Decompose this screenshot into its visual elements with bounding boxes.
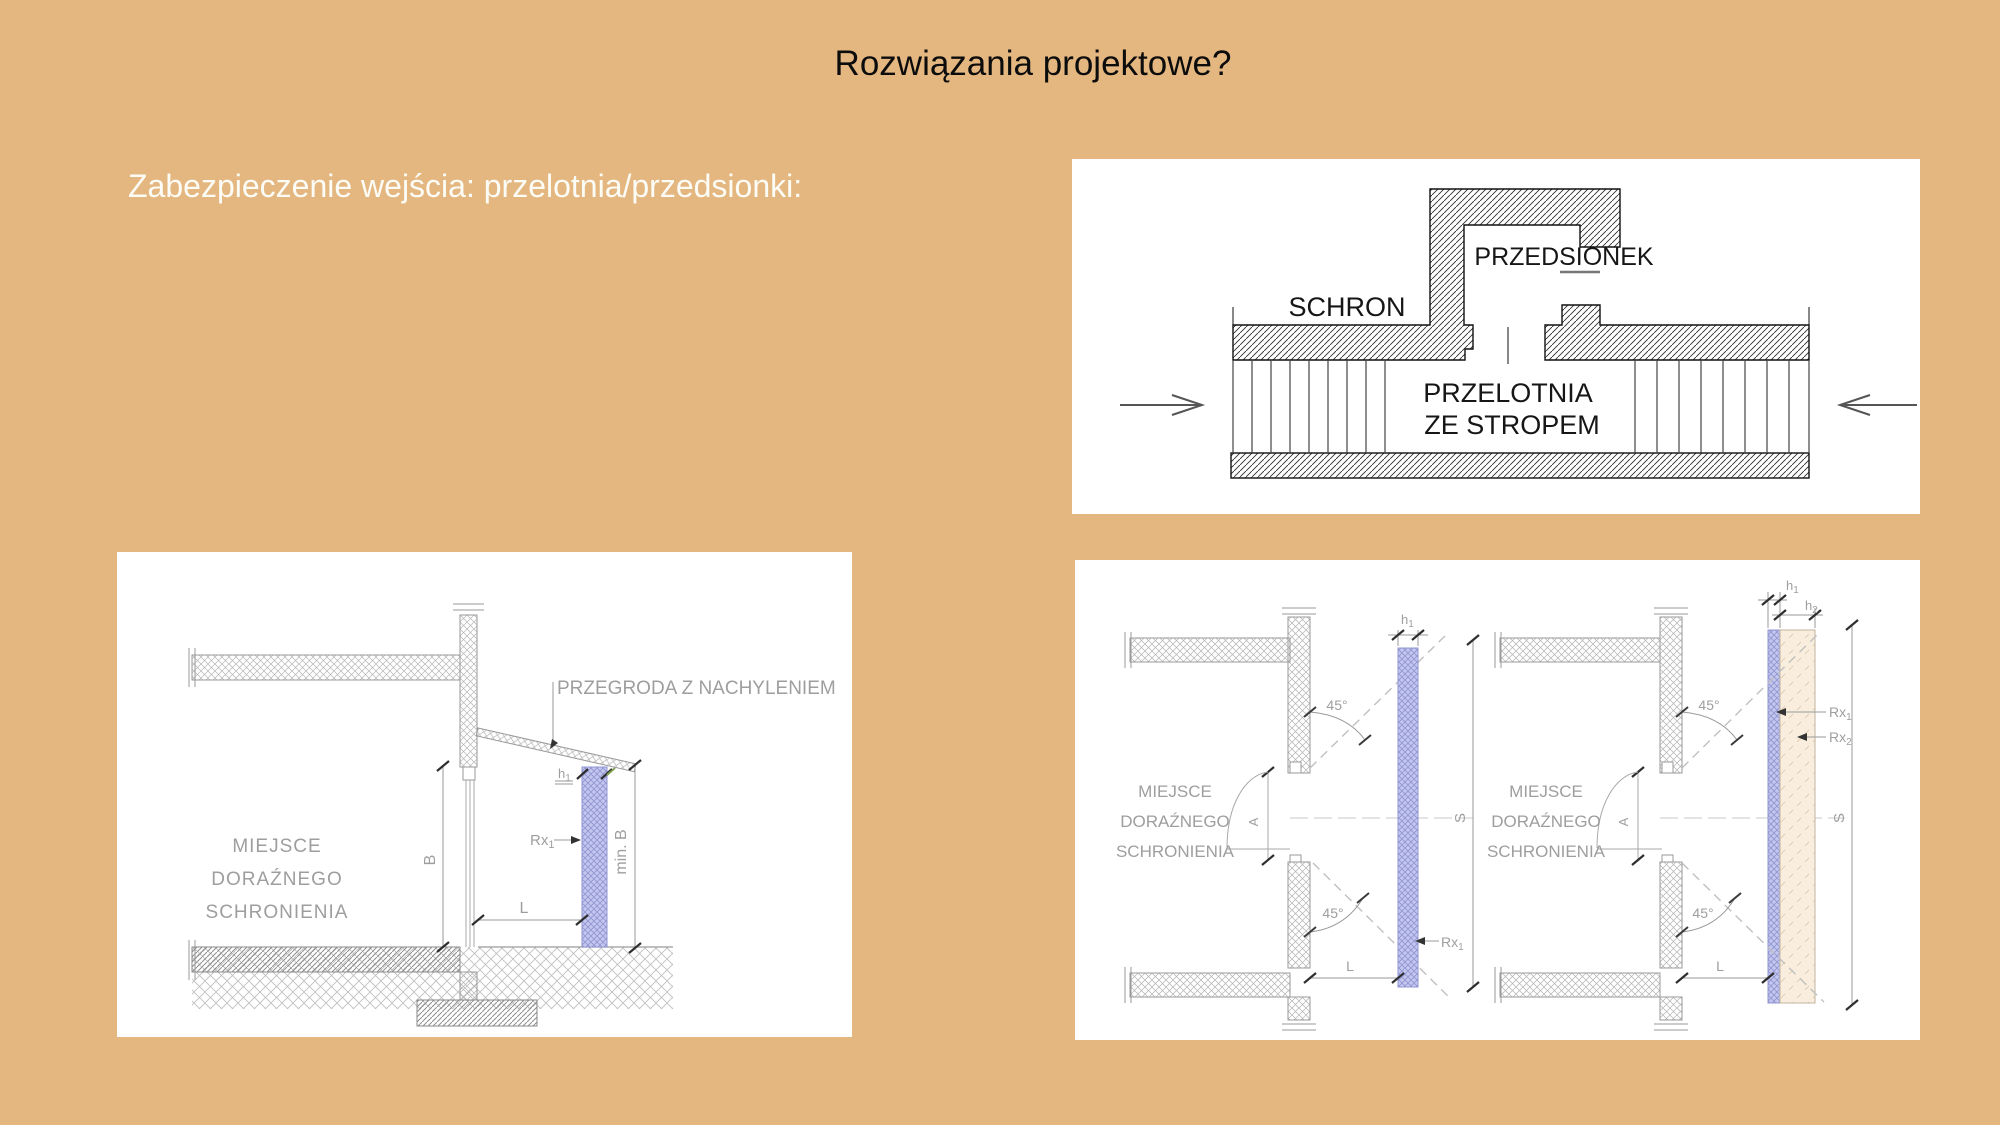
dim-label-s: S <box>1831 813 1848 823</box>
left-entry-arrow-icon <box>1120 395 1202 415</box>
label-przedsionek: PRZEDSIONEK <box>1474 243 1654 271</box>
schron-walls <box>1233 189 1809 360</box>
door-swing <box>1227 767 1290 865</box>
dim-label-l: L <box>1716 958 1724 974</box>
inclined-partition <box>476 728 636 772</box>
label-przelotnia-1: PRZELOTNIA <box>1423 378 1593 408</box>
right-entry-arrow-icon <box>1840 395 1917 415</box>
label-miejsce-3: SCHRONIENIA <box>1487 842 1606 861</box>
rx1-leader <box>554 836 581 844</box>
label-rx1: Rx1 <box>530 832 554 851</box>
angle-label-top: 45° <box>1326 697 1347 713</box>
label-miejsce-3: SCHRONIENIA <box>206 902 349 923</box>
plan-view-left: MIEJSCE DORAŹNEGO SCHRONIENIA 45° 45° A … <box>1116 608 1479 1030</box>
blast-screen-strip <box>1768 630 1780 1003</box>
dim-label-l: L <box>1346 958 1354 974</box>
angle-label-bottom: 45° <box>1322 905 1343 921</box>
label-rx1: Rx1 <box>1441 934 1464 953</box>
dimension-lines <box>1676 592 1858 1010</box>
przelotnia-bottom-slab <box>1231 453 1809 478</box>
angle-label-top: 45° <box>1698 697 1719 713</box>
slide-title: Rozwiązania projektowe? <box>0 44 2000 84</box>
label-schron: SCHRON <box>1288 292 1405 322</box>
slide-subtitle: Zabezpieczenie wejścia: przelotnia/przed… <box>128 168 802 205</box>
label-miejsce-1: MIEJSCE <box>1509 782 1583 801</box>
dim-label-h1: h1 <box>1786 578 1799 596</box>
label-rx1: Rx1 <box>1829 704 1852 723</box>
label-miejsce-2: DORAŹNEGO <box>211 869 342 890</box>
label-rx2: Rx2 <box>1829 729 1852 748</box>
dim-label-s: S <box>1452 813 1469 823</box>
label-miejsce-3: SCHRONIENIA <box>1116 842 1235 861</box>
panel-plan-views: MIEJSCE DORAŹNEGO SCHRONIENIA 45° 45° A … <box>1075 560 1920 1040</box>
panel-przegroda-section: PRZEGRODA Z NACHYLENIEM MIEJSCE DORAŹNEG… <box>117 552 852 1037</box>
dim-label-h2: h2 <box>1805 598 1818 616</box>
dim-label-min-b: min. B <box>613 829 630 874</box>
dimension-lines <box>437 760 641 953</box>
door-angle-label: A <box>1246 817 1261 826</box>
screen-layer-2 <box>1780 630 1815 1003</box>
blast-screen-strip <box>582 767 607 947</box>
door-swing <box>1597 767 1662 865</box>
label-miejsce-1: MIEJSCE <box>1138 782 1212 801</box>
blast-lines-45deg <box>1304 632 1452 1000</box>
ceiling-slab <box>189 648 460 687</box>
label-przelotnia-2: ZE STROPEM <box>1424 410 1600 440</box>
door-angle-label: A <box>1616 817 1631 826</box>
angle-label-bottom: 45° <box>1692 905 1713 921</box>
blast-screen-strip <box>1398 648 1418 987</box>
dim-label-l: L <box>520 900 529 917</box>
label-przegroda: PRZEGRODA Z NACHYLENIEM <box>557 678 836 699</box>
plan-view-right: MIEJSCE DORAŹNEGO SCHRONIENIA 45° 45° A … <box>1487 578 1858 1030</box>
label-miejsce-2: DORAŹNEGO <box>1491 812 1601 831</box>
label-miejsce-2: DORAŹNEGO <box>1120 812 1230 831</box>
dim-label-h1: h1 <box>1401 612 1414 630</box>
label-miejsce-1: MIEJSCE <box>232 836 321 857</box>
panel-przelotnia-diagram: SCHRON PRZEDSIONEK PRZELOTNIA ZE STROPEM <box>1072 159 1920 514</box>
dim-label-b: B <box>422 855 439 866</box>
